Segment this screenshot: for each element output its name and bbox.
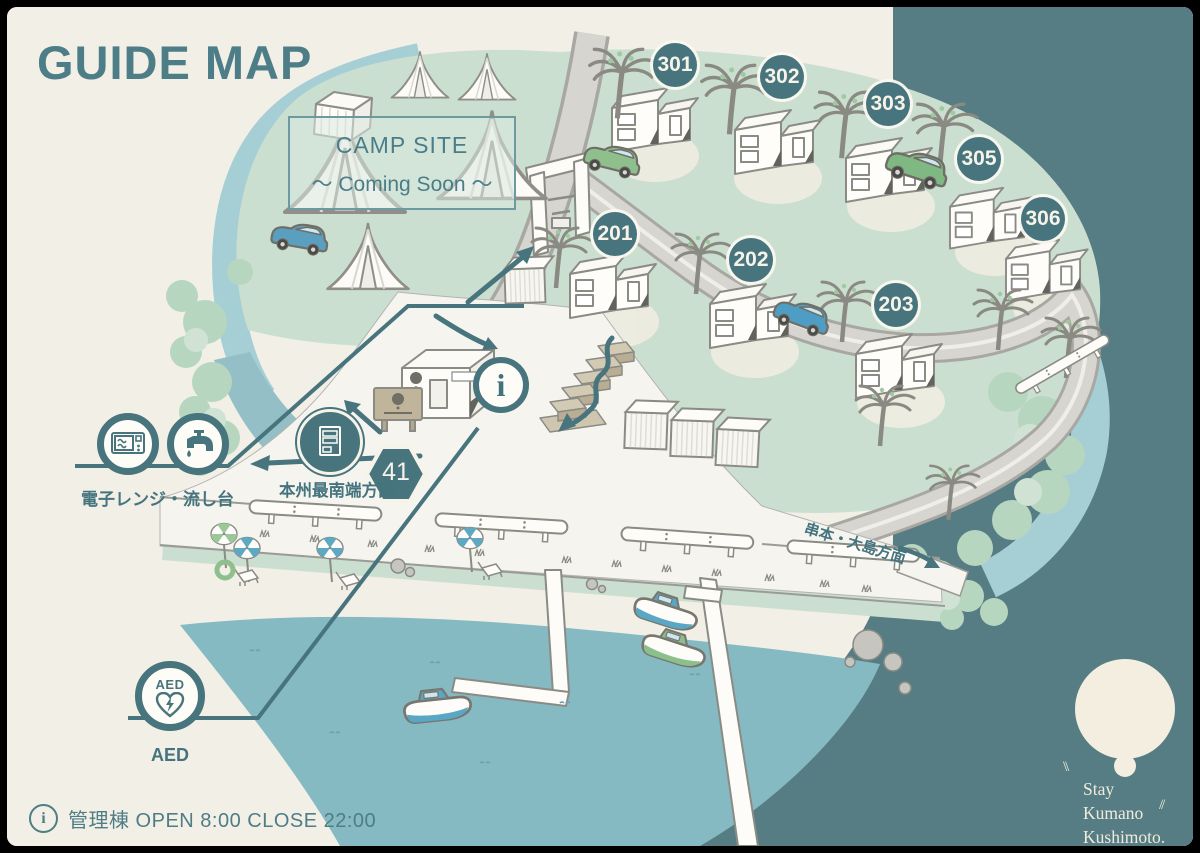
marker-202: 202 bbox=[729, 238, 773, 282]
vending-machine-icon bbox=[297, 409, 363, 475]
page-title: GUIDE MAP bbox=[37, 35, 312, 90]
logo-balloon bbox=[1075, 659, 1175, 759]
marker-306: 306 bbox=[1021, 197, 1065, 241]
marker-201: 201 bbox=[593, 212, 637, 256]
aed-label: AED bbox=[135, 745, 205, 766]
marker-305: 305 bbox=[957, 137, 1001, 181]
aed-icon-text: AED bbox=[156, 677, 185, 692]
logo-mark-left: \\ bbox=[1063, 759, 1067, 776]
footer-info: i 管理棟 OPEN 8:00 CLOSE 22:00 bbox=[29, 804, 376, 833]
camp-site-subtitle: ～ Coming Soon ～ bbox=[290, 168, 514, 198]
information-icon: i bbox=[473, 357, 529, 413]
aed-heart-icon: AED bbox=[135, 661, 205, 731]
microwave-icon bbox=[97, 413, 159, 475]
footer-info-text: 管理棟 OPEN 8:00 CLOSE 22:00 bbox=[68, 804, 376, 833]
map-canvas: GUIDE MAP CAMP SITE ～ Coming Soon ～ 301 … bbox=[7, 7, 1193, 846]
camp-site-title: CAMP SITE bbox=[290, 132, 514, 159]
camp-site-label: CAMP SITE ～ Coming Soon ～ bbox=[288, 116, 516, 210]
marker-303: 303 bbox=[866, 82, 910, 126]
footer-info-icon: i bbox=[29, 804, 58, 833]
logo-line-3: Kushimoto. bbox=[1083, 825, 1165, 846]
logo-balloon-knot bbox=[1114, 755, 1136, 777]
direction-left-label: 本州最南端方面 bbox=[279, 477, 395, 501]
guide-map-page: GUIDE MAP CAMP SITE ～ Coming Soon ～ 301 … bbox=[0, 0, 1200, 853]
marker-203: 203 bbox=[874, 283, 918, 327]
logo-line-1: Stay bbox=[1083, 777, 1165, 801]
info-glyph: i bbox=[497, 367, 506, 404]
microwave-sink-label: 電子レンジ・流し台 bbox=[81, 485, 234, 510]
marker-302: 302 bbox=[760, 55, 804, 99]
logo-line-2: Kumano bbox=[1083, 801, 1165, 825]
logo-text: Stay Kumano Kushimoto. bbox=[1083, 777, 1165, 846]
marker-301: 301 bbox=[653, 43, 697, 87]
faucet-icon bbox=[167, 413, 229, 475]
